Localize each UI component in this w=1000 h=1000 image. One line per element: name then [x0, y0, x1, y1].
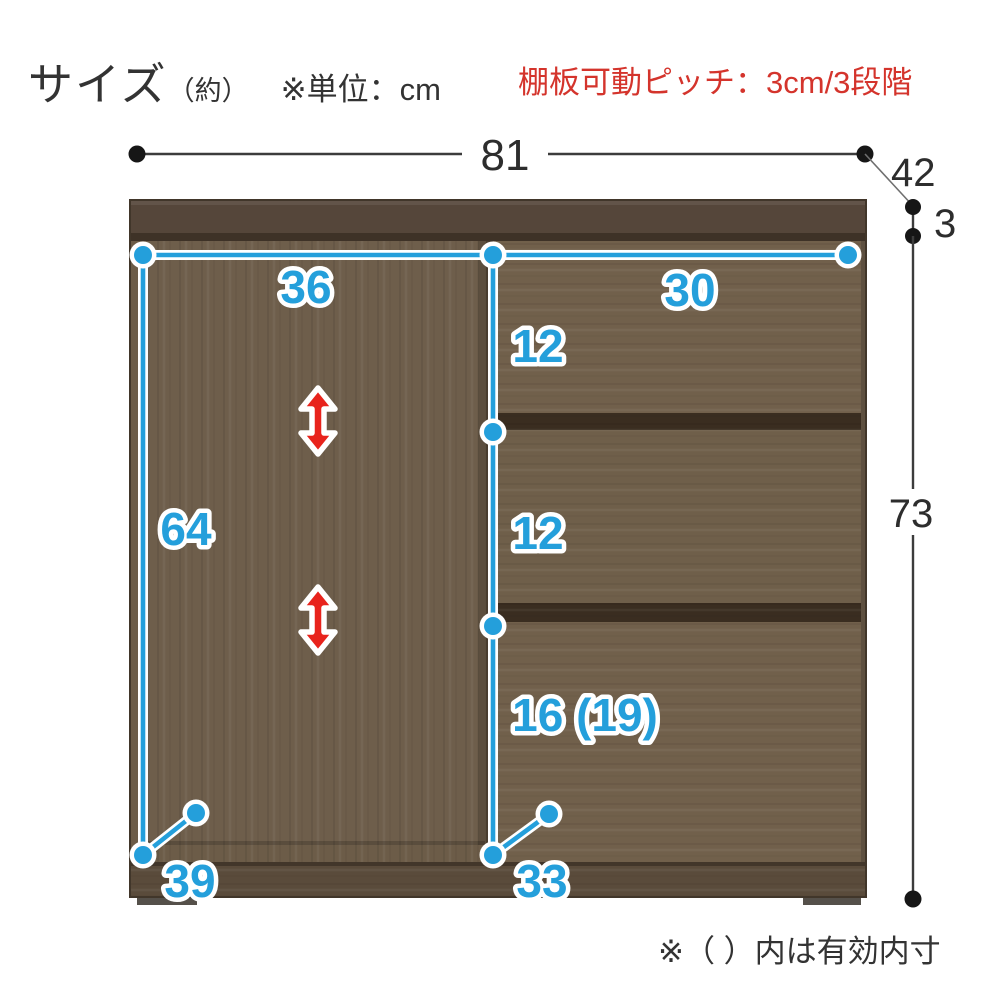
overall-width-dimension: 81 [129, 131, 874, 180]
door-inner-width-label: 36 [280, 261, 331, 313]
cabinet-dimension-diagram: 81 42 3 73 [0, 0, 1000, 1000]
blue-dot-bottom-center [484, 846, 502, 864]
drawer-inner-depth-label: 33 [516, 855, 567, 907]
drawer2-height-label: 12 [512, 507, 563, 559]
overall-height-dimension: 73 [889, 236, 934, 908]
drawer3-height-label: 16 (19) [512, 689, 658, 741]
blue-dot-door-depth [187, 804, 205, 822]
blue-dot-bottom-left [134, 846, 152, 864]
depth-dimension: 42 [865, 151, 936, 206]
blue-dot-top-left [134, 246, 152, 264]
width-dim-dot-left [129, 146, 146, 163]
door-inner-height-label: 64 [160, 503, 212, 555]
cabinet-top-board [130, 200, 866, 236]
depth-label: 42 [891, 151, 936, 195]
drawer-inner-width-label: 30 [664, 264, 715, 316]
overall-width-label: 81 [481, 131, 530, 180]
door-inner-depth-label: 39 [164, 855, 215, 907]
height-dim-dot-bottom [905, 891, 922, 908]
blue-dot-top-center [484, 246, 502, 264]
drawer1-height-label: 12 [512, 320, 563, 372]
thickness-dim-dot-top [905, 199, 921, 215]
blue-dot-top-right [839, 246, 857, 264]
door-bottom-shadow [147, 841, 485, 845]
blue-dot-drawer-gap-1 [484, 423, 502, 441]
blue-dot-drawer-gap-2 [484, 617, 502, 635]
top-separator [130, 233, 866, 241]
baseboard-grain [130, 866, 866, 897]
blue-dot-drawer-depth [540, 805, 558, 823]
door-edge-shadow [478, 241, 486, 845]
overall-height-label: 73 [889, 492, 934, 536]
top-thickness-label: 3 [934, 202, 956, 246]
